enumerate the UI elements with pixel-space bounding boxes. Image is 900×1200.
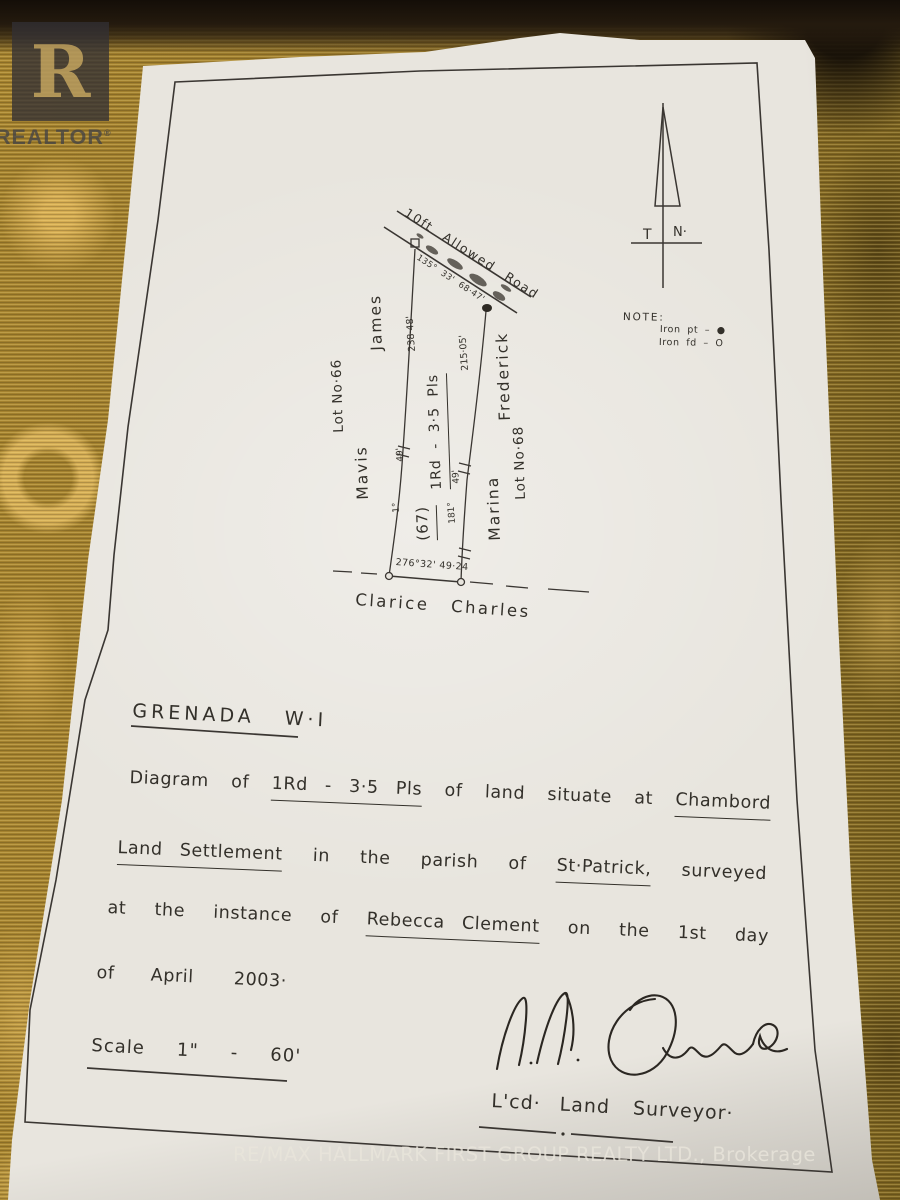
adjoiner-east-last: Frederick: [493, 332, 514, 421]
word: parish: [420, 850, 478, 872]
photo-of-survey-document: 10ft Allowed Road 135° 33' 68·47' 238·48…: [0, 0, 900, 1200]
realtor-logo-letter: R: [31, 36, 91, 108]
realtor-logo: R: [12, 22, 109, 121]
legend-iron-fd: Iron fd – O: [659, 337, 724, 349]
surveyor-underline: [479, 1127, 673, 1142]
brokerage-watermark: RE/MAX HALLMARK FIRST GROUP REALTY LTD.,…: [233, 1143, 693, 1166]
word: 1": [176, 1039, 199, 1061]
realtor-label-text: REALTOR: [0, 125, 104, 149]
realtor-watermark: R REALTOR®: [0, 22, 130, 150]
west-bearing-label: 1°: [391, 502, 402, 513]
word: Diagram: [129, 768, 209, 791]
word: Land: [559, 1094, 610, 1119]
iron-fd-circle-sw: [386, 573, 393, 580]
east-bearing-label: 181°: [446, 502, 457, 524]
word: at: [107, 898, 127, 919]
iron-fd-circle-se: [458, 579, 465, 586]
word: at: [634, 788, 654, 809]
title-region: W·I: [284, 707, 327, 731]
word: instance: [213, 903, 293, 926]
word: of: [96, 963, 115, 984]
adjoiner-west-lot: Lot No·66: [328, 359, 347, 433]
north-arrow: [631, 103, 702, 288]
word: on: [567, 918, 591, 939]
word: 60': [270, 1044, 302, 1067]
word: the: [619, 920, 650, 941]
north-arrow-n-label: N·: [673, 225, 687, 240]
parcel-area-label: 1Rd - 3·5 Pls: [425, 373, 451, 490]
word: -: [230, 1042, 239, 1063]
word: of: [508, 854, 527, 875]
legend-iron-pt: Iron pt – ●: [660, 324, 726, 336]
east-offset-label: 49': [451, 469, 462, 484]
word: land: [485, 782, 526, 804]
word: the: [154, 900, 185, 921]
parcel-south-boundary: [389, 576, 461, 582]
parcel-number-label: (67): [413, 505, 438, 541]
word: day: [734, 925, 769, 946]
word: April: [150, 965, 194, 987]
realtor-label: REALTOR®: [0, 125, 130, 150]
word: in: [312, 846, 330, 867]
word: 2003·: [233, 969, 287, 991]
word: situate: [547, 785, 612, 808]
adjoiner-west-first: Mavis: [352, 445, 372, 500]
registered-mark: ®: [104, 128, 112, 138]
west-offset-label: 49': [395, 447, 406, 462]
word: surveyed: [681, 861, 767, 884]
word: 1st: [677, 923, 707, 944]
word-underlined: St·Patrick,: [556, 856, 652, 887]
word: of: [444, 781, 463, 802]
word: the: [360, 848, 391, 869]
word: of: [231, 772, 250, 793]
surveyor-signature: [497, 993, 787, 1075]
adjoiner-east-lot: Lot No·68: [510, 426, 529, 500]
scale-underline: [87, 1068, 287, 1081]
word: of: [320, 907, 339, 928]
word-underlined: Chambord: [675, 790, 772, 821]
adjoiner-west-last: James: [366, 294, 386, 351]
iron-pt-blob-ne: [482, 304, 492, 312]
parcel-west-boundary: [389, 249, 415, 576]
word: Scale: [91, 1035, 145, 1059]
adjoiner-east-first: Marina: [484, 476, 504, 541]
legend-title: NOTE:: [623, 311, 665, 324]
word: L'cd·: [491, 1090, 541, 1115]
north-arrow-t-label: T: [643, 227, 652, 243]
